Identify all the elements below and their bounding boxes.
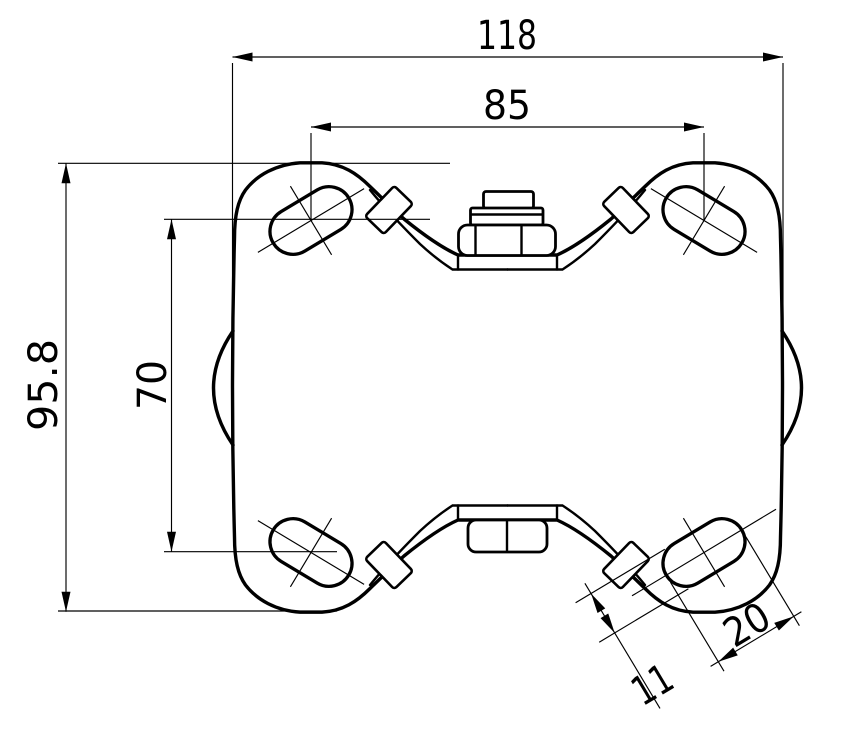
drawing-canvas: 118 85 95.8 70 20 11 xyxy=(0,0,854,740)
arrowhead xyxy=(311,123,331,132)
bolt-head-top xyxy=(484,192,534,209)
plate-body xyxy=(214,163,802,612)
axle-hex-nut xyxy=(468,520,547,552)
wheel-bulge-left xyxy=(214,331,234,445)
dim-overall-height-label: 95.8 xyxy=(21,339,67,431)
wheel-bulge-right xyxy=(782,331,802,445)
arrowhead xyxy=(62,163,71,183)
arrowhead xyxy=(62,592,71,612)
kingpin-bolt-stack xyxy=(459,192,556,256)
arrowhead xyxy=(167,532,176,552)
arrowhead xyxy=(684,123,704,132)
dim-hole-spacing-height-label: 70 xyxy=(130,360,176,410)
bolt-washer xyxy=(471,208,544,225)
extension-line xyxy=(599,589,688,643)
dim-hole-spacing-width-label: 85 xyxy=(483,83,531,129)
kingpin-hex-nut xyxy=(459,225,556,256)
arrowhead xyxy=(763,53,783,62)
arrowhead xyxy=(167,219,176,239)
dim-overall-width-label: 118 xyxy=(477,13,537,59)
dim-slot-width-label: 11 xyxy=(624,655,682,715)
caster-plate-drawing: 118 85 95.8 70 20 11 xyxy=(0,0,854,740)
arrowhead xyxy=(233,53,253,62)
